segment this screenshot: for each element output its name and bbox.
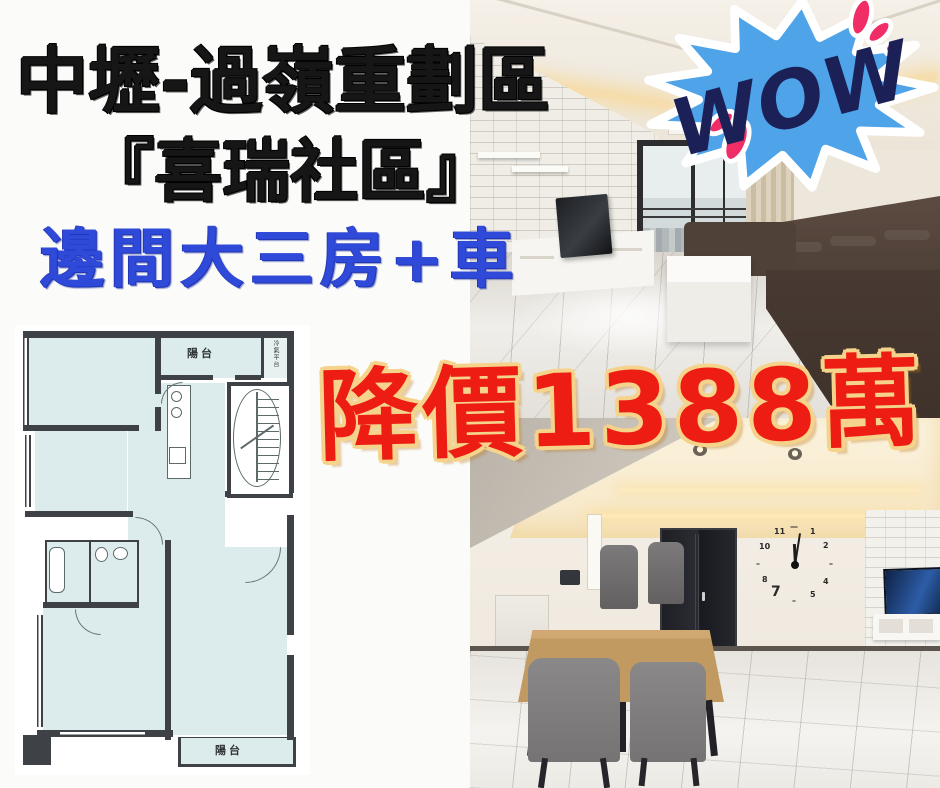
real-estate-flyer: — 1 2 – 4 5 – 7 8 – 10 11 [0, 0, 940, 788]
clock-12: — [790, 522, 798, 531]
floating-shelf [512, 166, 568, 172]
structural-column [23, 735, 51, 765]
door-handle [702, 592, 705, 601]
living-room-plan [165, 547, 287, 735]
bedroom-bottom-left [43, 607, 171, 735]
clock-3: – [829, 559, 833, 568]
television [555, 194, 612, 258]
dining-chair-back-left [600, 545, 638, 609]
table-leg [620, 702, 626, 752]
balcony-top-label: 陽台 [187, 345, 215, 361]
clock-11: 11 [774, 527, 785, 536]
toilet [95, 547, 108, 562]
headline-feature: 邊間大三房+車 [40, 208, 520, 300]
clock-9: – [756, 559, 760, 568]
headline-district: 中壢-過嶺重劃區 [16, 22, 550, 127]
wow-burst: WOW [631, 0, 940, 212]
headline-community: 『喜瑞社區』 [86, 116, 494, 215]
floor-plan: 陽台 冷氣平台 陽台 [15, 325, 310, 775]
balcony-bottom-label: 陽台 [215, 742, 243, 758]
dining-chair-front-left [528, 658, 620, 762]
clock-7: 7 [771, 584, 781, 600]
kitchen-stove [171, 407, 182, 418]
dining-chair-back-right [648, 542, 684, 604]
clock-10: 10 [759, 542, 770, 551]
clock-5: 5 [810, 590, 816, 599]
bedroom-mid-left [35, 431, 127, 513]
sink [113, 547, 128, 560]
ac-platform-label: 冷氣平台 [271, 340, 280, 368]
clock-center [791, 561, 799, 569]
clock-4: 4 [823, 577, 829, 586]
price-banner: 降價1388萬 [316, 320, 926, 481]
clock-1: 1 [810, 527, 816, 536]
wall-clock: — 1 2 – 4 5 – 7 8 – 10 11 [750, 520, 840, 610]
bathtub [49, 547, 65, 593]
led-strip [620, 488, 920, 492]
clock-8: 8 [762, 575, 768, 584]
television-2 [883, 567, 940, 617]
tv-stand [873, 614, 940, 640]
clock-2: 2 [823, 541, 829, 550]
stairwell [227, 382, 293, 498]
thermostat-panel [560, 570, 580, 585]
kitchen-unit [169, 447, 186, 464]
dining-chair-front-right [630, 662, 706, 762]
clock-6: – [792, 596, 796, 605]
balcony-rail [643, 216, 751, 218]
